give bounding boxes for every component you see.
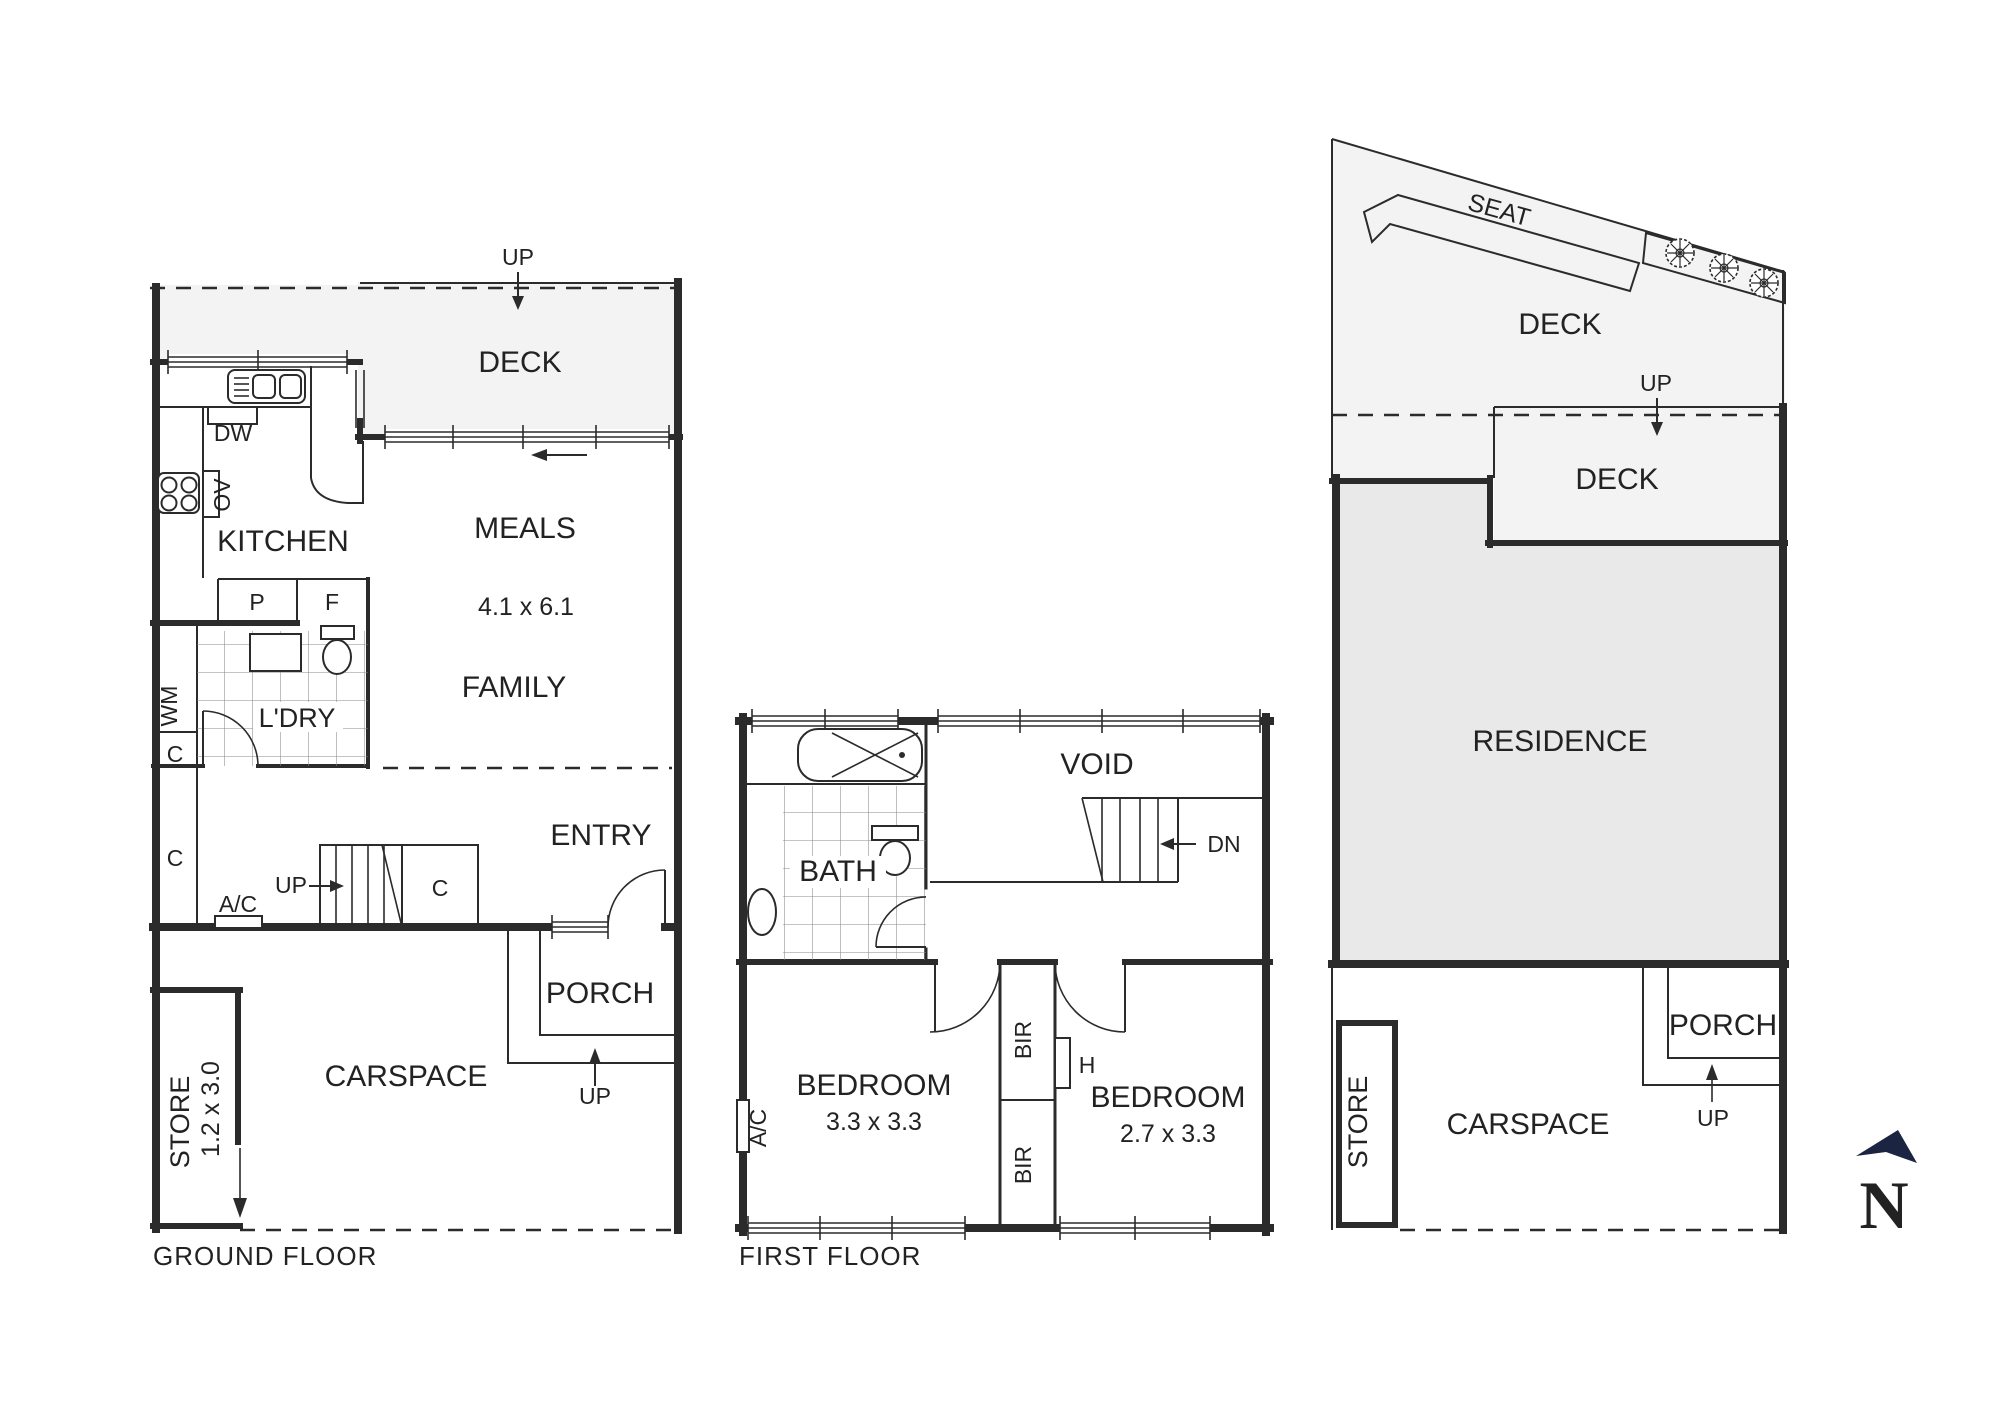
north-compass: N: [1856, 1130, 1917, 1243]
label-bath: BATH: [799, 855, 877, 888]
label-void: VOID: [1060, 748, 1133, 781]
plant-icon: [1750, 269, 1778, 297]
label-meals: MEALS: [474, 512, 576, 545]
label-site-porch-up: UP: [1697, 1105, 1729, 1131]
label-bedroom1-dim: 3.3 x 3.3: [826, 1108, 922, 1136]
label-kitchen: KITCHEN: [217, 525, 349, 558]
label-fridge: F: [325, 589, 339, 615]
label-cupboard-small: C: [167, 741, 184, 767]
label-bir-bottom: BIR: [1010, 1146, 1036, 1184]
site-plan: SEAT DECK UP DECK RESIDENCE PORCH UP STO…: [1332, 139, 1785, 1230]
heater-unit-icon: [1055, 1038, 1070, 1088]
label-bir-top: BIR: [1010, 1021, 1036, 1059]
sink-icon: [228, 370, 305, 403]
plant-icon: [1666, 239, 1694, 267]
label-carspace-ground: CARSPACE: [325, 1060, 488, 1093]
stairs-ground: [309, 845, 478, 927]
label-cupboard-stairs: C: [432, 875, 449, 901]
floorplan-page: DECK UP KITCHEN DW OV MEALS 4.1 x 6.1 FA…: [0, 0, 2000, 1413]
first-floor-title: FIRST FLOOR: [739, 1241, 921, 1271]
cooktop-icon: [158, 473, 199, 513]
label-residence: RESIDENCE: [1472, 725, 1647, 758]
plant-icon: [1710, 254, 1738, 282]
north-arrow-icon: [1856, 1130, 1917, 1163]
bedroom2-door: [1055, 962, 1125, 1032]
label-store-dim: 1.2 x 3.0: [197, 1061, 225, 1157]
floorplan-drawing: DECK UP KITCHEN DW OV MEALS 4.1 x 6.1 FA…: [0, 0, 2000, 1413]
bedroom1-door: [930, 962, 1000, 1032]
label-bedroom2: BEDROOM: [1090, 1081, 1245, 1114]
aircon-unit-icon: [215, 916, 262, 928]
north-letter: N: [1859, 1167, 1908, 1243]
label-entry: ENTRY: [550, 819, 651, 852]
label-site-store: STORE: [1343, 1076, 1373, 1169]
label-washer: WM: [156, 686, 182, 727]
first-floor-plan: BATH VOID DN BEDROOM 3.3 x 3.3 BIR H BIR…: [737, 709, 1270, 1271]
label-porch-up: UP: [579, 1083, 611, 1109]
label-family: FAMILY: [462, 671, 566, 704]
label-oven: OV: [209, 478, 235, 512]
bathtub-icon: [798, 729, 922, 781]
label-stairs-up: UP: [275, 872, 307, 898]
label-site-deck-up: UP: [1640, 370, 1672, 396]
residence-area: [1332, 480, 1783, 964]
label-deck-upper: DECK: [1518, 308, 1601, 341]
label-meals-dim: 4.1 x 6.1: [478, 593, 574, 621]
laundry-trough-icon: [250, 634, 301, 671]
store-access-arrow: [233, 1148, 247, 1218]
label-dishwasher: DW: [214, 420, 253, 446]
deck-sliding-door: [385, 425, 669, 461]
label-deck-ground: DECK: [478, 346, 561, 379]
label-cupboard-tall: C: [167, 845, 184, 871]
label-heater: H: [1079, 1052, 1096, 1078]
label-site-carspace: CARSPACE: [1447, 1108, 1610, 1141]
ground-floor-title: GROUND FLOOR: [153, 1241, 377, 1271]
toilet-icon: [321, 626, 354, 674]
label-aircon-ground: A/C: [219, 891, 257, 917]
entry-sidelight-window: [552, 915, 608, 939]
label-store-ground: STORE: [165, 1076, 195, 1169]
vanity-basin-icon: [748, 889, 776, 935]
label-laundry: L'DRY: [259, 703, 336, 733]
label-pantry: P: [249, 589, 264, 615]
ground-floor-plan: DECK UP KITCHEN DW OV MEALS 4.1 x 6.1 FA…: [150, 244, 680, 1271]
label-site-porch: PORCH: [1669, 1009, 1777, 1042]
label-bedroom1: BEDROOM: [796, 1069, 951, 1102]
label-aircon-first: A/C: [745, 1109, 771, 1147]
label-deck-mid: DECK: [1575, 463, 1658, 496]
label-deck-up: UP: [502, 244, 534, 270]
label-porch-ground: PORCH: [546, 977, 654, 1010]
entry-door: [608, 870, 665, 927]
label-bedroom2-dim: 2.7 x 3.3: [1120, 1120, 1216, 1148]
label-stairs-dn: DN: [1207, 831, 1240, 857]
